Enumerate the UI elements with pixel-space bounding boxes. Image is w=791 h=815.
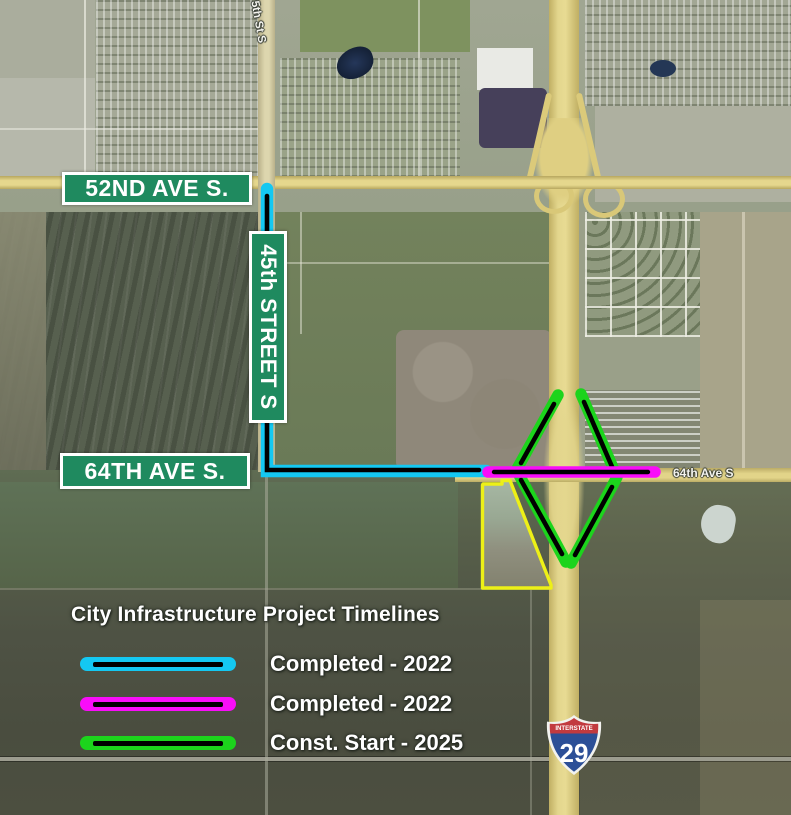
section-road [265,470,268,815]
shield-band-text: INTERSTATE [555,725,592,732]
field-boundary [0,588,552,590]
minor-road [418,0,420,188]
legend-title: City Infrastructure Project Timelines [71,603,440,627]
legend-swatch-core [93,662,223,667]
green-field [300,0,470,52]
street-badge-52nd-ave-s: 52ND AVE S. [62,172,252,205]
open-land [700,212,791,470]
residential-blocks [585,0,791,106]
64th-ave-road [455,468,791,482]
interstate-29-shield: INTERSTATE 29 [544,713,604,777]
residential-blocks [96,0,268,182]
street-badge-label: 45th STREET S [252,231,284,423]
road-label-64th-ave-s: 64th Ave S [673,466,733,480]
residential-blocks [280,58,460,186]
legend-item-const-start-2025: Const. Start - 2025 [80,730,463,756]
legend-label: Const. Start - 2025 [270,730,463,756]
legend-swatch-core [93,702,223,707]
minor-road [742,212,745,470]
legend-label: Completed - 2022 [270,691,452,717]
section-road [530,590,532,815]
legend-label: Completed - 2022 [270,651,452,677]
dense-housing-rows [585,390,700,470]
minor-road [258,262,552,264]
field-patch [700,600,791,815]
minor-road [84,0,86,188]
construction-dirt-area [396,330,552,470]
street-badge-label: 52ND AVE S. [85,175,229,202]
legend-swatch-green [80,736,236,750]
legend-item-completed-2022-cyan: Completed - 2022 [80,651,452,677]
section-road [0,757,791,761]
minor-road [300,212,302,334]
legend-item-completed-2022-magenta: Completed - 2022 [80,691,452,717]
street-grid-neighborhood [585,212,705,337]
minor-road [0,128,260,130]
field-edge [0,212,46,474]
legend-swatch-cyan [80,657,236,671]
commercial-area [0,0,95,78]
shield-route-number: 29 [560,738,589,768]
street-badge-45th-street-s: 45th STREET S [249,231,287,423]
satellite-map: 52ND AVE S. 45th STREET S 64TH AVE S. 5t… [0,0,791,815]
pond [650,60,676,77]
green-field-south [0,482,458,588]
legend-swatch-magenta [80,697,236,711]
street-badge-label: 64TH AVE S. [85,458,226,485]
street-badge-64th-ave-s: 64TH AVE S. [60,453,250,489]
big-box-store [477,48,533,90]
legend-swatch-core [93,741,223,746]
